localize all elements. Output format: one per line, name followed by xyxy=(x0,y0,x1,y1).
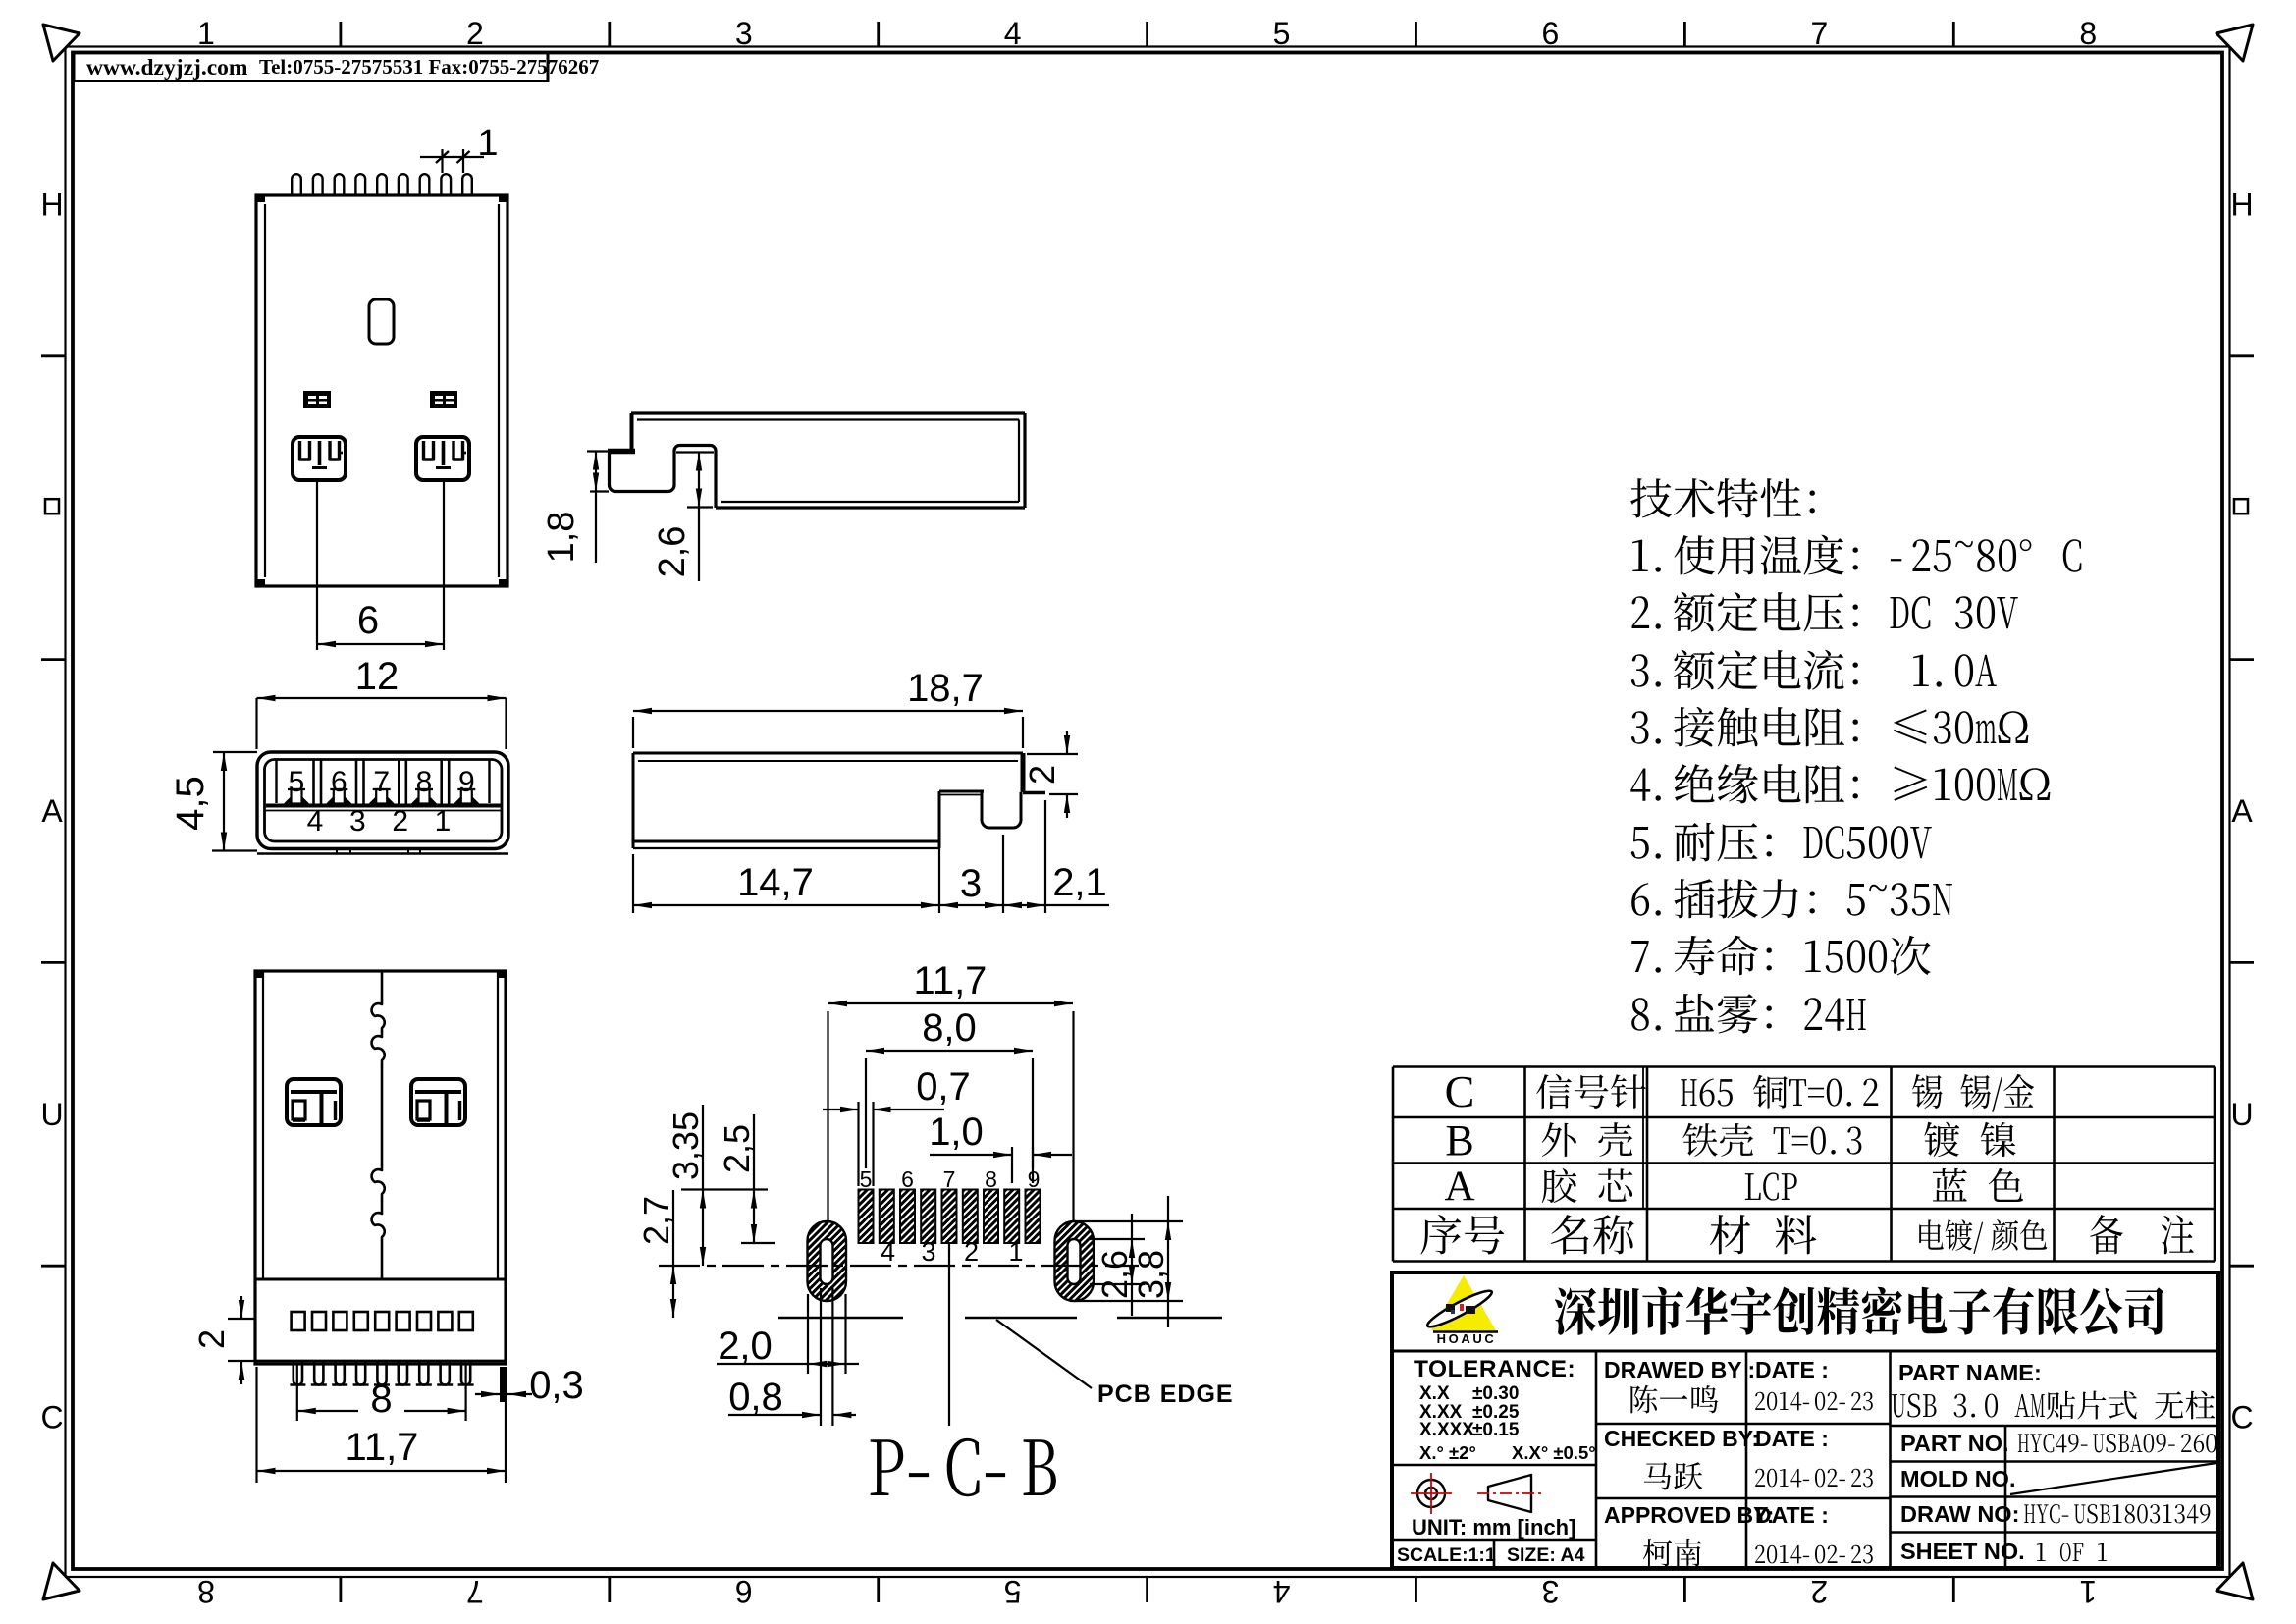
svg-text:3,8: 3,8 xyxy=(1131,1250,1171,1299)
svg-text:8: 8 xyxy=(416,766,433,798)
svg-text:2: 2 xyxy=(964,1237,979,1267)
svg-text:7: 7 xyxy=(466,1574,484,1609)
svg-text:DATE :: DATE : xyxy=(1755,1426,1829,1451)
svg-text:2,5: 2,5 xyxy=(717,1124,757,1173)
svg-text:MOLD NO.: MOLD NO. xyxy=(1900,1466,2016,1491)
svg-text:1: 1 xyxy=(435,805,452,838)
svg-text:Tel:0755-27575531 Fax:0755-27: Tel:0755-27575531 Fax:0755-27576267 xyxy=(259,55,599,79)
svg-text:4: 4 xyxy=(307,805,324,838)
svg-text:2,6: 2,6 xyxy=(652,526,693,578)
svg-text:3: 3 xyxy=(921,1237,935,1267)
svg-text:SIZE: A4: SIZE: A4 xyxy=(1507,1544,1585,1566)
svg-text:X.XXX: X.XXX xyxy=(1419,1420,1474,1440)
svg-text:DATE :: DATE : xyxy=(1755,1357,1829,1382)
svg-text:DRAWED BY :: DRAWED BY : xyxy=(1604,1357,1755,1382)
svg-text:2,7: 2,7 xyxy=(636,1196,676,1245)
svg-text:2,6: 2,6 xyxy=(1095,1250,1135,1299)
svg-text:7: 7 xyxy=(1810,16,1828,51)
svg-text:0,8: 0,8 xyxy=(728,1376,783,1419)
svg-text:3: 3 xyxy=(960,862,982,905)
svg-text:1: 1 xyxy=(197,16,215,51)
svg-text:3: 3 xyxy=(1542,1574,1560,1609)
svg-text:1: 1 xyxy=(477,123,498,164)
svg-text:1: 1 xyxy=(1008,1237,1023,1267)
svg-text:2: 2 xyxy=(1810,1574,1828,1609)
svg-text:X.X: X.X xyxy=(1419,1383,1450,1404)
svg-text:1,0: 1,0 xyxy=(929,1110,984,1154)
svg-text:SCALE:1:1: SCALE:1:1 xyxy=(1397,1544,1496,1566)
svg-text:APPROVED BY:: APPROVED BY: xyxy=(1604,1502,1774,1528)
svg-text:6: 6 xyxy=(735,1574,753,1609)
svg-text:X.X° ±0.5°: X.X° ±0.5° xyxy=(1512,1442,1596,1463)
svg-text:C: C xyxy=(1445,1066,1475,1116)
svg-text:1,8: 1,8 xyxy=(541,512,582,564)
svg-text:2: 2 xyxy=(191,1329,232,1349)
svg-text:A: A xyxy=(1444,1164,1474,1210)
svg-text:5: 5 xyxy=(1273,16,1291,51)
svg-text:8: 8 xyxy=(2079,16,2097,51)
svg-text:8: 8 xyxy=(370,1378,392,1421)
svg-text:A: A xyxy=(41,793,63,829)
svg-text:4: 4 xyxy=(881,1237,895,1267)
svg-text:3,35: 3,35 xyxy=(666,1111,706,1180)
svg-text:C: C xyxy=(2230,1400,2253,1435)
svg-text:±0.15: ±0.15 xyxy=(1472,1420,1520,1440)
svg-text:9: 9 xyxy=(458,766,475,798)
svg-text:5: 5 xyxy=(1004,1574,1022,1609)
svg-text:2,1: 2,1 xyxy=(1052,861,1107,904)
svg-text:6: 6 xyxy=(331,766,347,798)
svg-text:8: 8 xyxy=(985,1166,997,1192)
svg-text:11,7: 11,7 xyxy=(346,1426,419,1469)
svg-text:C: C xyxy=(40,1400,63,1435)
svg-text:14,7: 14,7 xyxy=(737,861,814,904)
svg-text:5: 5 xyxy=(289,766,305,798)
svg-text:U: U xyxy=(2230,1097,2253,1132)
svg-text:4,5: 4,5 xyxy=(169,776,212,831)
svg-text:8,0: 8,0 xyxy=(922,1006,977,1050)
svg-text:4: 4 xyxy=(1004,16,1022,51)
svg-text:2: 2 xyxy=(392,805,408,838)
svg-text:±0.30: ±0.30 xyxy=(1472,1383,1519,1404)
svg-text:6: 6 xyxy=(357,599,379,642)
svg-text:PART NO.: PART NO. xyxy=(1900,1431,2009,1456)
svg-text:H: H xyxy=(2230,187,2253,222)
svg-text:DRAW NO:: DRAW NO: xyxy=(1900,1501,2019,1527)
svg-text:8: 8 xyxy=(197,1574,215,1609)
svg-text:0,7: 0,7 xyxy=(916,1065,971,1109)
svg-text:6: 6 xyxy=(901,1166,914,1192)
svg-text:1: 1 xyxy=(2079,1574,2097,1609)
svg-text:6: 6 xyxy=(1542,16,1560,51)
svg-text:TOLERANCE:: TOLERANCE: xyxy=(1414,1356,1575,1382)
svg-text:12: 12 xyxy=(355,655,400,698)
svg-text:7: 7 xyxy=(373,766,390,798)
svg-text:H: H xyxy=(40,187,63,222)
svg-text:PCB EDGE: PCB EDGE xyxy=(1097,1380,1234,1408)
svg-text:11,7: 11,7 xyxy=(914,959,988,1002)
svg-text:SHEET NO.: SHEET NO. xyxy=(1900,1539,2025,1564)
svg-text:9: 9 xyxy=(1028,1166,1041,1192)
svg-text:A: A xyxy=(2231,793,2253,829)
svg-text:PART NAME:: PART NAME: xyxy=(1898,1360,2042,1385)
svg-text:HOAUC: HOAUC xyxy=(1437,1331,1497,1346)
svg-text:X.° ±2°: X.° ±2° xyxy=(1419,1442,1476,1463)
svg-text:2: 2 xyxy=(1022,765,1062,785)
svg-text:DATE :: DATE : xyxy=(1755,1502,1829,1528)
svg-text:7: 7 xyxy=(943,1166,956,1192)
svg-text:B: B xyxy=(1445,1116,1473,1164)
svg-text:CHECKED BY:: CHECKED BY: xyxy=(1604,1426,1759,1451)
svg-text:3: 3 xyxy=(735,16,753,51)
svg-text:4: 4 xyxy=(1273,1574,1291,1609)
svg-text:UNIT: mm [inch]: UNIT: mm [inch] xyxy=(1412,1515,1575,1540)
svg-text:18,7: 18,7 xyxy=(907,667,984,710)
svg-text:U: U xyxy=(40,1097,63,1132)
svg-text:5: 5 xyxy=(860,1166,873,1192)
svg-text:3: 3 xyxy=(349,805,366,838)
svg-text:www.dzyjzj.com: www.dzyjzj.com xyxy=(86,55,248,81)
svg-text:0,3: 0,3 xyxy=(529,1364,584,1407)
svg-text:2: 2 xyxy=(466,16,484,51)
svg-text:2,0: 2,0 xyxy=(718,1325,773,1368)
